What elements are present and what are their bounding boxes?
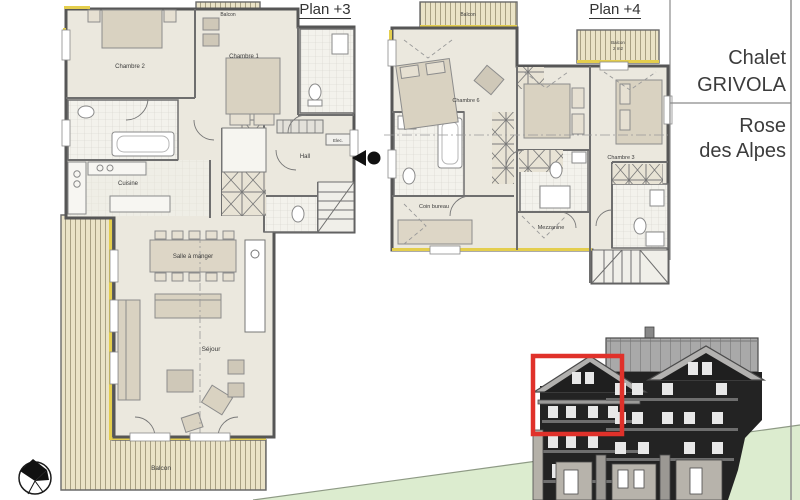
room-label-elec: Elec.	[333, 138, 343, 143]
north-arrow-icon	[19, 459, 51, 494]
room-label-chambre-2: Chambre 2	[115, 64, 145, 70]
plan3-title: Plan +3	[299, 1, 350, 18]
unit-name-line2: des Alpes	[699, 140, 786, 162]
room-label-hall: Hall	[300, 154, 310, 160]
room-label-cuisine: Cuisine	[118, 181, 139, 187]
room-label-balcon-right-2: 2 m2	[613, 46, 624, 51]
room-label-chambre-6: Chambre 6	[452, 98, 479, 104]
drawing-canvas: Balcon Chambre 2 Chambre 1 Cuisine Hall …	[0, 0, 800, 500]
building-name-line2: GRIVOLA	[697, 74, 787, 96]
room-label-balcon: Balcon	[151, 465, 171, 472]
room-label-balcon-right-1: Balcon	[611, 40, 625, 45]
unit-name-line1: Rose	[739, 115, 786, 137]
plan4-title: Plan +4	[589, 1, 640, 18]
room-label-balcon-top-4: Balcon	[460, 12, 476, 18]
building-elevation	[533, 327, 764, 500]
plan3-stairs	[318, 182, 354, 232]
plan4-stairs	[592, 250, 668, 283]
room-label-chambre-3: Chambre 3	[607, 155, 634, 161]
room-label-balcon-top: Balcon	[220, 12, 236, 18]
room-label-salle-a-manger: Salle à manger	[173, 254, 213, 260]
room-label-coin-bureau: Coin bureau	[419, 204, 449, 210]
room-label-chambre-1: Chambre 1	[229, 54, 259, 60]
plan4-drawing: Balcon Balcon 2 m2 Chambre 6 Chambre 3 C…	[384, 2, 672, 283]
building-name-line1: Chalet	[728, 47, 786, 69]
plan3-drawing: Balcon Chambre 2 Chambre 1 Cuisine Hall …	[61, 2, 358, 490]
floor-plan-sheet: Balcon Chambre 2 Chambre 1 Cuisine Hall …	[0, 0, 800, 500]
room-label-mezzanine: Mezzanine	[538, 225, 565, 231]
room-label-sejour: Séjour	[202, 346, 222, 353]
